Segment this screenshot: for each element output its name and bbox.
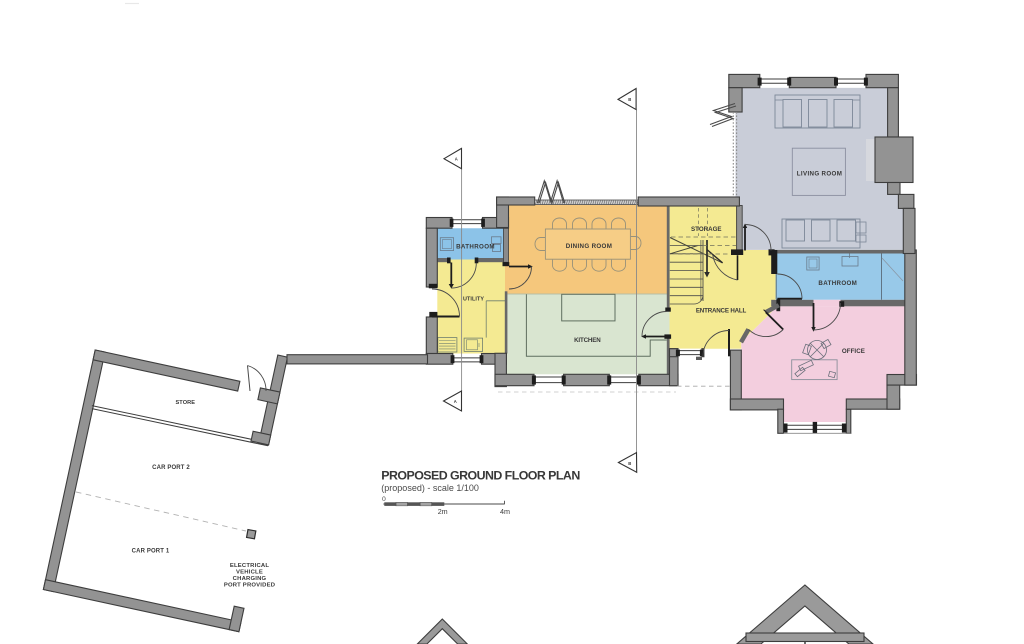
svg-text:STORAGE: STORAGE [691,226,721,233]
svg-text:(proposed) - scale 1/100: (proposed) - scale 1/100 [381,483,479,493]
svg-text:LIVING ROOM: LIVING ROOM [797,171,842,178]
svg-text:ENTRANCE HALL: ENTRANCE HALL [696,308,747,315]
svg-text:PORT PROVIDED: PORT PROVIDED [224,583,275,589]
svg-text:CAR PORT 2: CAR PORT 2 [152,465,190,471]
svg-text:DINING ROOM: DINING ROOM [566,243,612,250]
svg-text:STORE: STORE [175,400,195,406]
svg-text:CHARGING: CHARGING [233,576,267,582]
svg-text:B: B [628,97,631,102]
svg-text:PROPOSED GROUND FLOOR PLAN: PROPOSED GROUND FLOOR PLAN [381,468,580,482]
svg-text:VEHICLE: VEHICLE [236,570,263,576]
svg-text:BATHROOM: BATHROOM [818,280,857,287]
svg-text:KITCHEN: KITCHEN [574,337,601,344]
svg-text:BATHROOM: BATHROOM [456,244,495,251]
svg-text:UTILITY: UTILITY [463,297,484,303]
svg-text:B: B [628,461,631,466]
svg-text:OFFICE: OFFICE [842,348,865,355]
svg-text:0: 0 [382,496,386,503]
svg-text:ELECTRICAL: ELECTRICAL [230,563,270,569]
svg-text:A: A [455,156,458,161]
svg-text:2m: 2m [438,507,448,516]
svg-text:A: A [454,399,457,404]
svg-text:CAR PORT 1: CAR PORT 1 [132,549,170,555]
svg-text:4m: 4m [500,507,510,516]
